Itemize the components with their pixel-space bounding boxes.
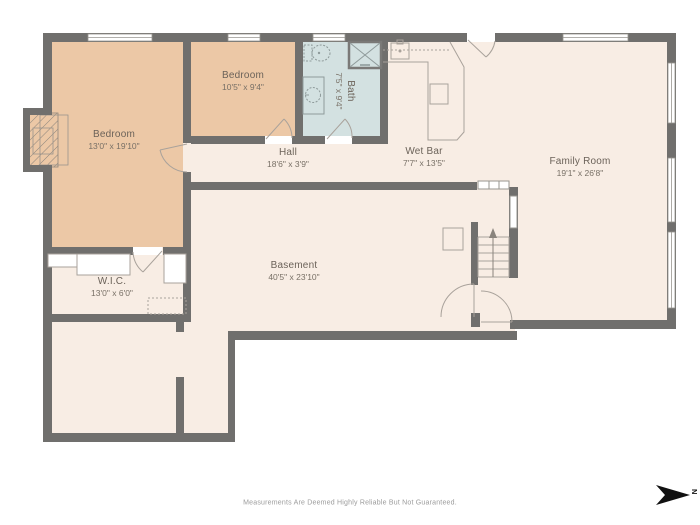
compass-label: N xyxy=(690,489,699,494)
bath-floor xyxy=(303,42,380,136)
closet-shelf xyxy=(77,254,130,275)
window xyxy=(313,34,345,41)
north-arrow-icon xyxy=(656,485,690,505)
closet-shelf xyxy=(48,254,77,267)
bedroom1-door-opening xyxy=(183,143,191,172)
wall-left-upper xyxy=(43,33,52,115)
window xyxy=(88,34,152,41)
wall-stair-left xyxy=(471,222,478,285)
wall-family-bottom xyxy=(510,320,676,329)
wall-bedroom1-right-upper xyxy=(183,42,191,143)
window xyxy=(563,34,628,41)
wall-basement-bottom xyxy=(228,331,517,340)
wall-bottomleft-stub-lower xyxy=(176,377,184,437)
compass: N xyxy=(656,485,699,505)
bedroom2-floor xyxy=(191,42,295,136)
bedroom1-floor xyxy=(52,42,183,247)
window xyxy=(668,158,675,222)
wall-bottomleft-stub-upper xyxy=(176,322,184,332)
window xyxy=(668,63,675,123)
wall-hall-bottom xyxy=(191,182,477,190)
entry-door-opening xyxy=(467,33,495,42)
floor-areas xyxy=(30,42,667,433)
floor-plan: N Bedroom 13'0" x 19'10" Bedroom 10'5" x… xyxy=(0,0,700,525)
wic-door-opening xyxy=(133,247,162,255)
floor-plan-drawing: N xyxy=(0,0,700,525)
stair-top-shelf xyxy=(478,181,509,189)
stair-wall-niche xyxy=(510,196,517,228)
wall-wic-bottom xyxy=(43,314,191,322)
wall-bedroom2-bath xyxy=(295,42,303,144)
disclaimer-text: Measurements Are Deemed Highly Reliable … xyxy=(243,500,457,507)
closet-shelf xyxy=(164,254,186,283)
wall-stair-left-stub xyxy=(471,313,480,327)
window xyxy=(668,232,675,308)
wall-bottomleft-bottom xyxy=(43,433,235,442)
wall-bedroom1-right-lower xyxy=(183,172,191,255)
wall-left-lower xyxy=(43,165,52,442)
bedroom2-door-opening xyxy=(265,136,292,144)
wall-bottomleft-right xyxy=(228,331,235,442)
wall-chimney-left xyxy=(23,108,30,172)
chimney-hatch xyxy=(28,113,58,167)
window xyxy=(228,34,260,41)
wall-hall-top-1 xyxy=(191,136,265,144)
